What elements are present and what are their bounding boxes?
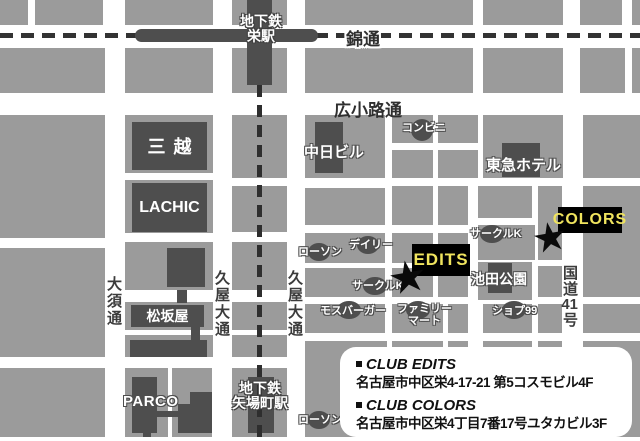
route41-part2: 41 — [561, 297, 578, 312]
building — [167, 248, 205, 287]
colors-star-icon: ★ — [529, 215, 571, 261]
city-block — [478, 186, 532, 218]
chunichi-building-label: 中日ビル — [304, 141, 364, 162]
poi-mos-burger: モスバーガー — [320, 305, 386, 317]
yabacho-station-label: 地下鉄 矢場町駅 — [222, 381, 298, 411]
city-block — [305, 188, 385, 225]
poi-daily: デイリー — [349, 239, 393, 251]
club-edits-name: CLUB EDITS — [356, 355, 632, 374]
ikeda-park-label: 池田公園 — [471, 269, 527, 289]
city-block — [580, 48, 625, 93]
poi-shop99: ショプ99 — [492, 305, 537, 317]
route41-part1: 国道 — [561, 265, 578, 297]
sakae-station-label: 地下鉄 栄駅 — [229, 14, 293, 44]
city-block — [580, 0, 622, 25]
matsuzakaya-label: 松坂屋 — [131, 305, 204, 327]
club-colors-address: 名古屋市中区栄4丁目7番17号ユタカビル3F — [356, 415, 632, 433]
city-block — [392, 150, 433, 178]
edits-star-icon: ★ — [384, 253, 430, 303]
nishiki-dori-label: 錦通 — [346, 25, 380, 50]
city-block — [0, 368, 105, 437]
hisaya-odori-west-label: 久屋大通 — [211, 270, 232, 338]
building — [191, 327, 200, 341]
building — [143, 430, 151, 437]
poi-lawson-mid: ローソン — [298, 246, 342, 258]
city-block — [305, 48, 473, 93]
club-colors-name: CLUB COLORS — [356, 396, 632, 415]
building — [130, 340, 207, 357]
tokyu-hotel-label: 東急ホテル — [486, 154, 561, 175]
poi-lawson-south: ローソン — [298, 414, 342, 426]
poi-conbini: コンビニ — [402, 122, 446, 134]
colors-marker-box: COLORS — [558, 207, 622, 233]
yabacho-station-line2: 矢場町駅 — [222, 396, 298, 411]
hirokoji-dori-label: 広小路通 — [334, 96, 402, 121]
city-block — [125, 48, 213, 93]
route41-label: 国道41号 — [559, 265, 580, 328]
city-block — [438, 150, 478, 178]
city-block — [0, 48, 105, 93]
city-block — [35, 0, 103, 25]
poi-familymart-line1: ファミリー — [397, 303, 452, 315]
building — [178, 404, 212, 433]
parco-label: PARCO — [123, 393, 179, 410]
hisaya-odori-east-label: 久屋大通 — [284, 270, 305, 338]
city-block — [583, 186, 640, 297]
city-block — [583, 115, 640, 178]
city-block — [483, 48, 563, 93]
city-block — [632, 0, 640, 25]
city-block — [438, 186, 468, 225]
mitsukoshi-label: 三越 — [132, 122, 207, 170]
building — [177, 290, 187, 303]
city-block — [632, 48, 640, 93]
sakae-station-line1: 地下鉄 — [229, 14, 293, 29]
city-block — [392, 186, 433, 225]
sakae-station-line2: 栄駅 — [229, 29, 293, 44]
nagoya-sakae-access-map: 地下鉄 栄駅 地下鉄 矢場町駅 錦通 広小路通 大須通 久屋大通 久屋大通 国道… — [0, 0, 640, 441]
lachic-label: LACHIC — [132, 183, 207, 232]
route41-part3: 号 — [561, 312, 578, 328]
poi-familymart: ファミリー マート — [397, 303, 452, 327]
city-block — [0, 0, 28, 25]
square-bullet-icon — [356, 402, 362, 408]
club-colors-name-text: CLUB COLORS — [366, 397, 476, 414]
club-address-info-box: CLUB EDITS 名古屋市中区栄4-17-21 第5コスモビル4F CLUB… — [340, 347, 632, 437]
osu-dori-label: 大須通 — [103, 276, 124, 327]
city-block — [0, 248, 105, 357]
nishiki-dori-rail-dashed-line — [0, 33, 640, 38]
club-edits-address: 名古屋市中区栄4-17-21 第5コスモビル4F — [356, 374, 632, 392]
club-edits-name-text: CLUB EDITS — [366, 356, 456, 373]
poi-familymart-line2: マート — [397, 315, 452, 327]
city-block — [583, 304, 640, 333]
building — [150, 411, 180, 417]
city-block — [305, 0, 473, 25]
city-block — [125, 0, 213, 25]
building — [190, 392, 212, 404]
yabacho-station-line1: 地下鉄 — [222, 381, 298, 396]
square-bullet-icon — [356, 361, 362, 367]
city-block — [483, 0, 563, 25]
poi-circlek-north: サークルK — [470, 228, 522, 240]
city-block — [0, 115, 105, 238]
